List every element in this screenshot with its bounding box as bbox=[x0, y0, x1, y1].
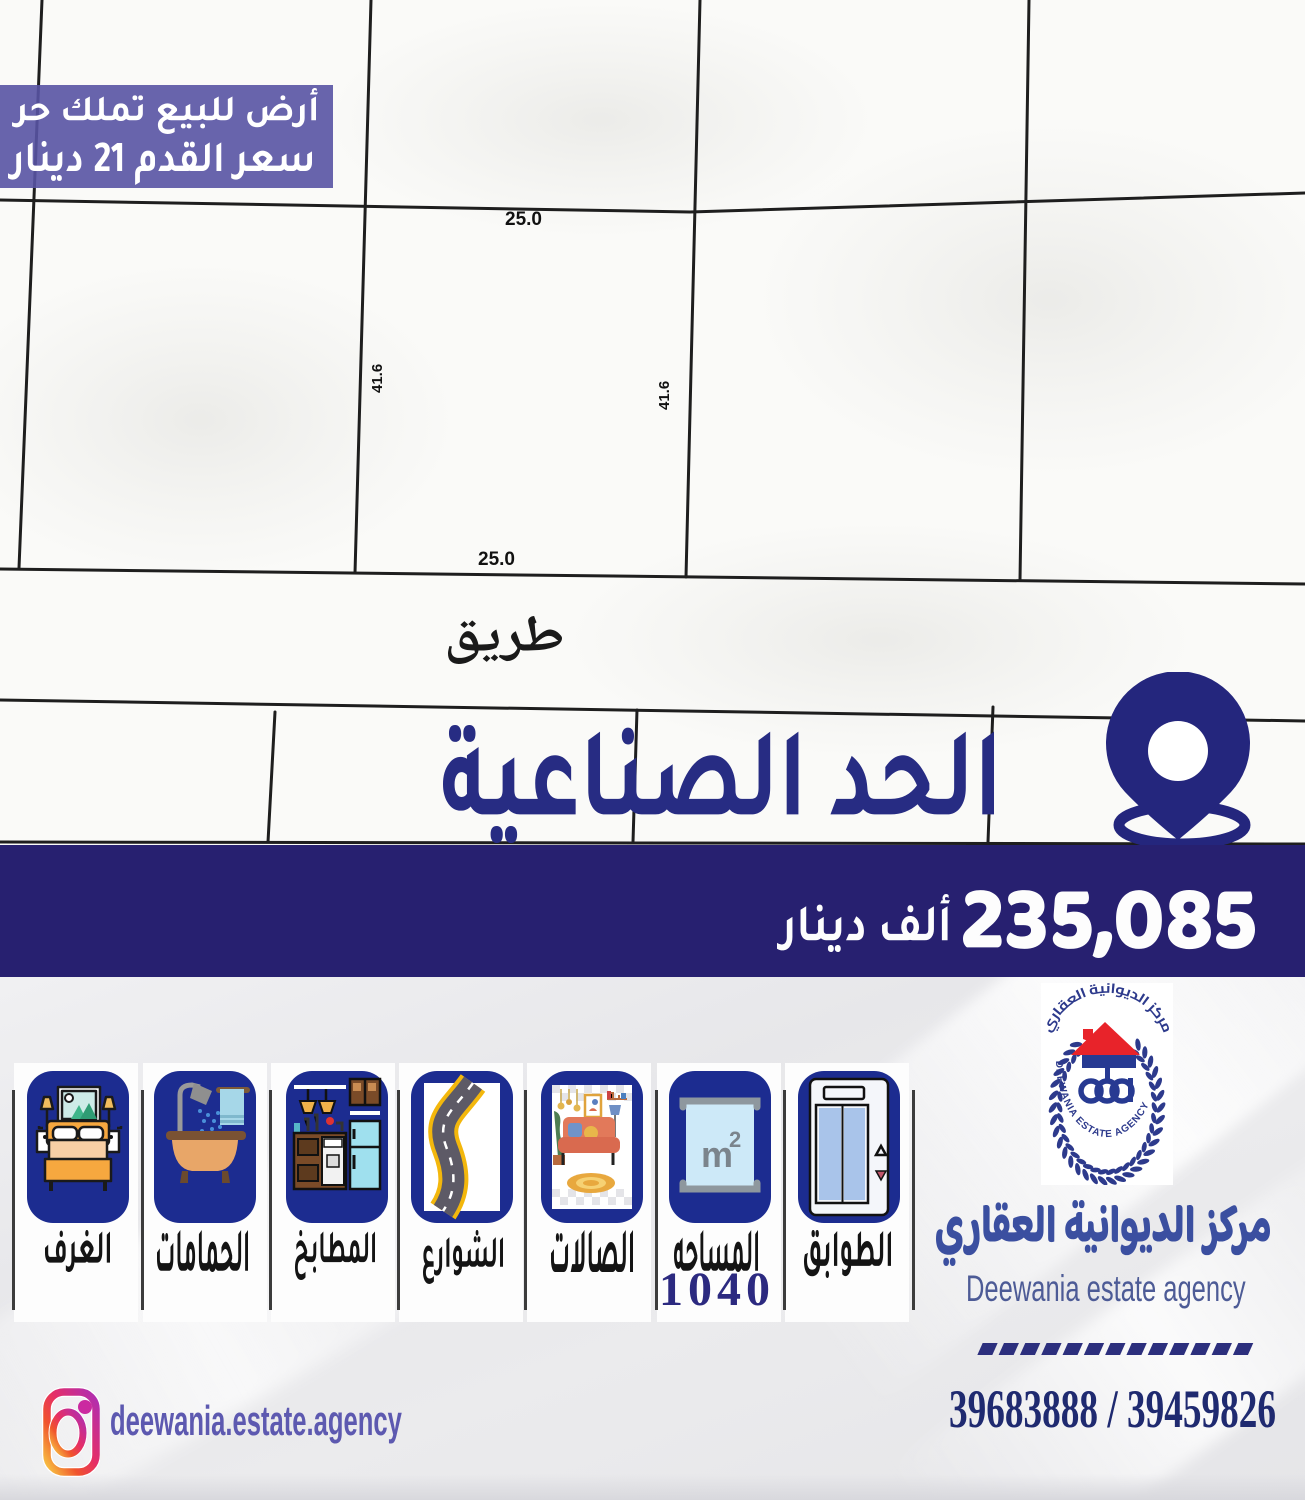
svg-text:2: 2 bbox=[729, 1127, 741, 1152]
